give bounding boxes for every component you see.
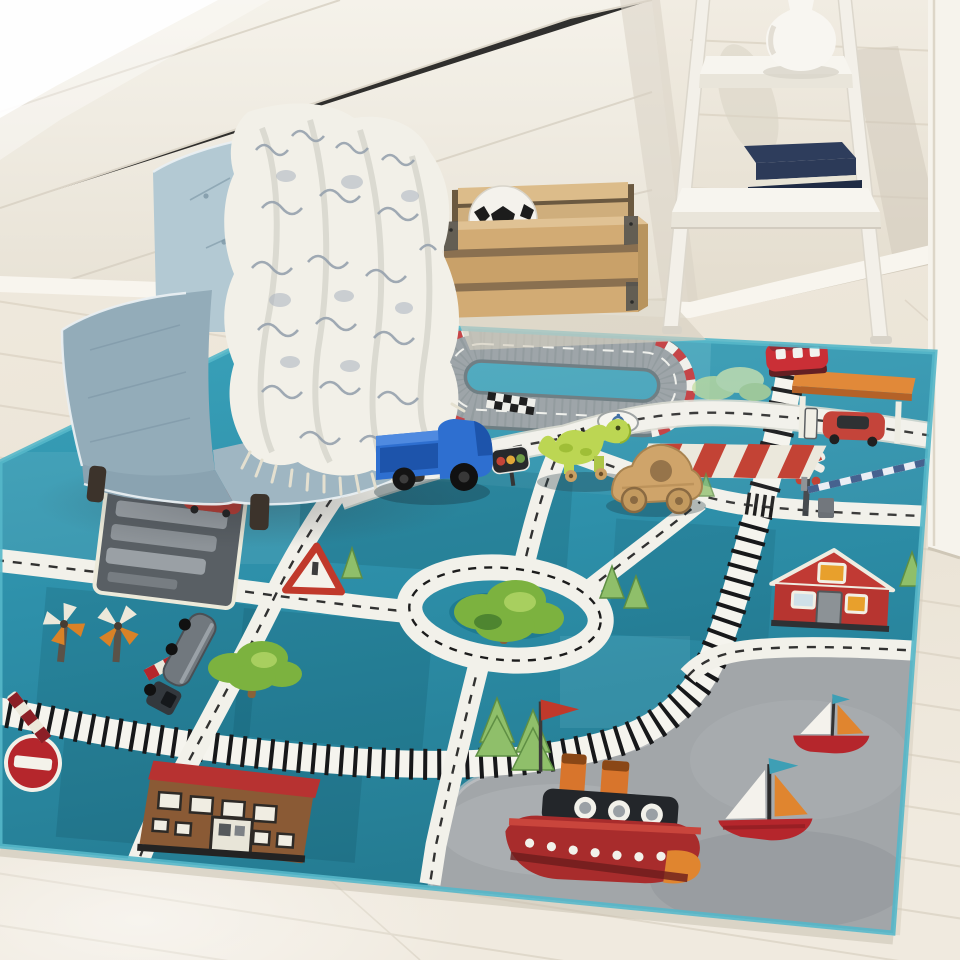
playroom-photo bbox=[0, 0, 960, 960]
wooden-crate bbox=[444, 182, 648, 318]
scene-canvas bbox=[0, 0, 960, 960]
door-panel bbox=[928, 0, 960, 558]
